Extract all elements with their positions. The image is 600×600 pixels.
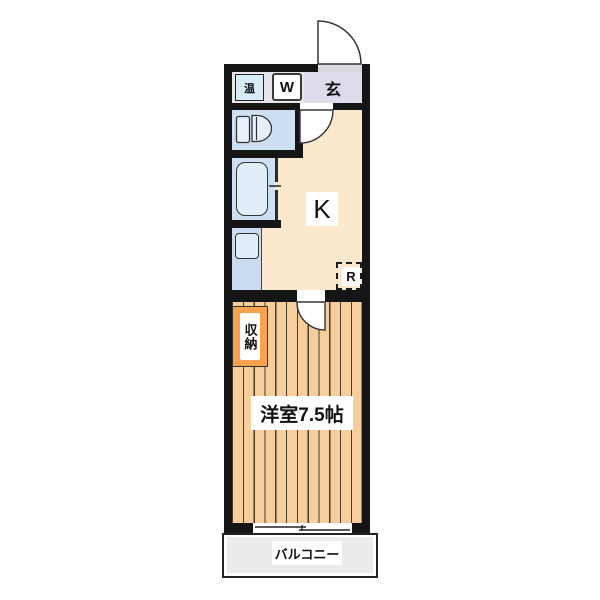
western-room-label-box: 洋室7.5帖	[251, 396, 353, 430]
kitchen-label: K	[313, 194, 330, 225]
balcony-label-box: バルコニー	[272, 541, 342, 565]
balcony-window	[253, 523, 352, 533]
water-heater-box: 温	[235, 74, 264, 101]
kitchen-room-door-opening	[297, 290, 325, 302]
bathtub	[236, 162, 268, 216]
wall-toilet-bath	[224, 150, 303, 158]
closet-label-box: 収納	[240, 313, 260, 360]
washing-machine-box: W	[272, 73, 302, 101]
water-heater-label: 温	[244, 80, 255, 96]
kitchen-label-box: K	[306, 192, 338, 226]
wall-bath-sink	[224, 220, 281, 228]
balcony-label: バルコニー	[275, 544, 340, 563]
washing-machine-label: W	[280, 79, 294, 96]
hall-kitchen-door-opening	[300, 103, 333, 110]
kitchen-sink	[235, 233, 259, 259]
entrance-area: 玄	[304, 72, 362, 103]
entrance-label: 玄	[325, 76, 341, 100]
entrance-door-swing	[318, 21, 361, 64]
bath-wall-segment	[275, 158, 278, 182]
entrance-door-opening	[318, 64, 362, 72]
closet-label: 収納	[241, 323, 260, 351]
bath-wall-segment	[275, 190, 278, 220]
toilet-room	[232, 110, 295, 150]
refrigerator-label-box: R	[342, 267, 360, 286]
floor-plan: 温 W 玄 K R 収納 洋室7.5帖 バルコニー	[0, 0, 600, 600]
western-room-label: 洋室7.5帖	[260, 400, 343, 427]
refrigerator-label: R	[346, 269, 355, 284]
